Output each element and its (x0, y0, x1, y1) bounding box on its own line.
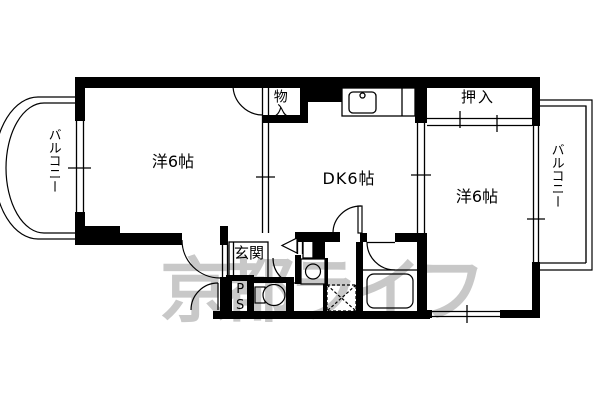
watermark: 京都ライフ (160, 256, 480, 326)
room-label-right-western: 洋6帖 (442, 189, 512, 206)
room-label-balcony-right: バルコニー (549, 143, 563, 231)
wall-segment (532, 262, 540, 318)
balcony-right-outer-rail (540, 100, 592, 270)
room-label-balcony-left: バルコニー (46, 128, 60, 212)
room-label-left-western: 洋6帖 (137, 154, 209, 171)
dk-door-arc (333, 206, 361, 233)
dk-door-leaf (358, 206, 362, 233)
room-label-dk: DK6帖 (312, 171, 386, 188)
wall-segment (78, 226, 120, 234)
monoire-door-arc (233, 85, 263, 115)
wall-segment (415, 88, 427, 123)
faucet-icon (360, 93, 365, 98)
balcony-left-inner-rail (6, 103, 75, 233)
kitchen (342, 88, 415, 116)
wall-segment (532, 77, 540, 126)
wall-segment (75, 233, 182, 245)
balcony-left-outer-rail (0, 97, 75, 239)
wall-segment (220, 226, 228, 245)
room-label-monoire: 物入 (272, 89, 287, 123)
wall-segment (75, 77, 540, 88)
wall-segment (360, 233, 367, 242)
floorplan: 洋6帖 DK6帖 洋6帖 押入 物入 玄関 PS バルコニー バルコニー 京都ラ… (0, 0, 600, 400)
wall-segment (300, 88, 308, 123)
wall-segment (308, 77, 342, 102)
wall-segment (75, 88, 85, 121)
room-label-oshiire: 押入 (457, 90, 499, 106)
